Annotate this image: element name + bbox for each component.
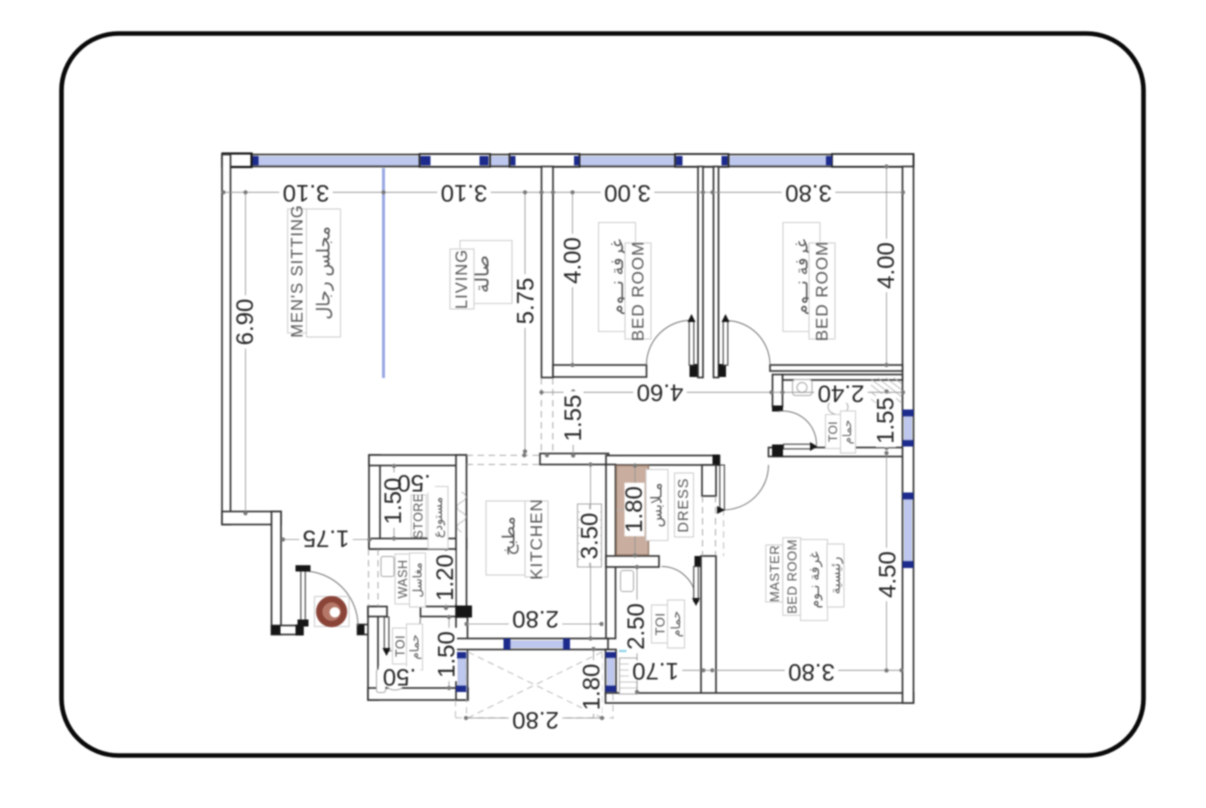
svg-text:TOI: TOI [826, 421, 840, 442]
svg-text:STORE: STORE [412, 493, 426, 538]
svg-text:رئيسية: رئيسية [828, 557, 844, 595]
svg-text:4.00: 4.00 [560, 237, 587, 284]
svg-text:مستودع: مستودع [431, 497, 446, 538]
svg-text:1.50: 1.50 [434, 631, 461, 678]
svg-text:3.80: 3.80 [788, 658, 835, 685]
svg-text:4.50: 4.50 [875, 551, 902, 598]
svg-text:4.60: 4.60 [637, 379, 684, 406]
svg-text:6.90: 6.90 [232, 299, 259, 346]
svg-text:غرفة نـوم: غرفة نـوم [806, 551, 823, 608]
svg-text:2.80: 2.80 [512, 605, 559, 632]
svg-text:2.50: 2.50 [623, 603, 650, 650]
svg-text:1.55: 1.55 [873, 397, 900, 444]
svg-text:MASTER: MASTER [767, 545, 782, 602]
svg-text:1.80: 1.80 [579, 664, 606, 711]
svg-text:BED ROOM: BED ROOM [629, 241, 648, 342]
svg-text:TOI: TOI [653, 613, 668, 636]
svg-text:4.00: 4.00 [873, 242, 900, 289]
svg-text:صالة: صالة [473, 255, 494, 293]
svg-text:مجلس رجال: مجلس رجال [314, 226, 335, 320]
svg-text:1.55: 1.55 [560, 395, 587, 442]
svg-text:حمام: حمام [841, 420, 854, 444]
svg-text:LIVING: LIVING [453, 249, 471, 309]
svg-text:KITCHEN: KITCHEN [527, 498, 546, 580]
svg-text:DRESS: DRESS [676, 478, 692, 533]
svg-text:حمام: حمام [669, 610, 684, 637]
svg-text:2.80: 2.80 [512, 706, 559, 733]
svg-text:حمام: حمام [408, 634, 422, 659]
svg-text:.50: .50 [383, 663, 416, 690]
svg-text:1.80: 1.80 [621, 486, 648, 533]
svg-text:مطبخ: مطبخ [500, 516, 520, 555]
svg-text:1.75: 1.75 [303, 525, 350, 552]
svg-text:2.40: 2.40 [818, 380, 865, 407]
svg-text:5.75: 5.75 [513, 278, 540, 325]
svg-text:مـلابس: مـلابس [649, 483, 666, 528]
svg-text:3.00: 3.00 [604, 179, 651, 206]
svg-text:3.10: 3.10 [283, 179, 330, 206]
svg-text:MEN'S SITTING: MEN'S SITTING [288, 204, 306, 338]
svg-text:1.20: 1.20 [432, 554, 459, 601]
svg-text:TOI: TOI [394, 635, 408, 657]
svg-text:1.70: 1.70 [632, 657, 679, 684]
svg-text:3.10: 3.10 [441, 179, 488, 206]
svg-text:1.50: 1.50 [380, 478, 407, 525]
svg-text:BED ROOM: BED ROOM [813, 241, 832, 342]
svg-text:مغاسل: مغاسل [411, 562, 425, 597]
svg-text:WASH: WASH [396, 559, 410, 598]
svg-text:3.50: 3.50 [577, 513, 604, 560]
svg-text:BED ROOM: BED ROOM [784, 539, 799, 614]
svg-text:3.80: 3.80 [785, 179, 832, 206]
